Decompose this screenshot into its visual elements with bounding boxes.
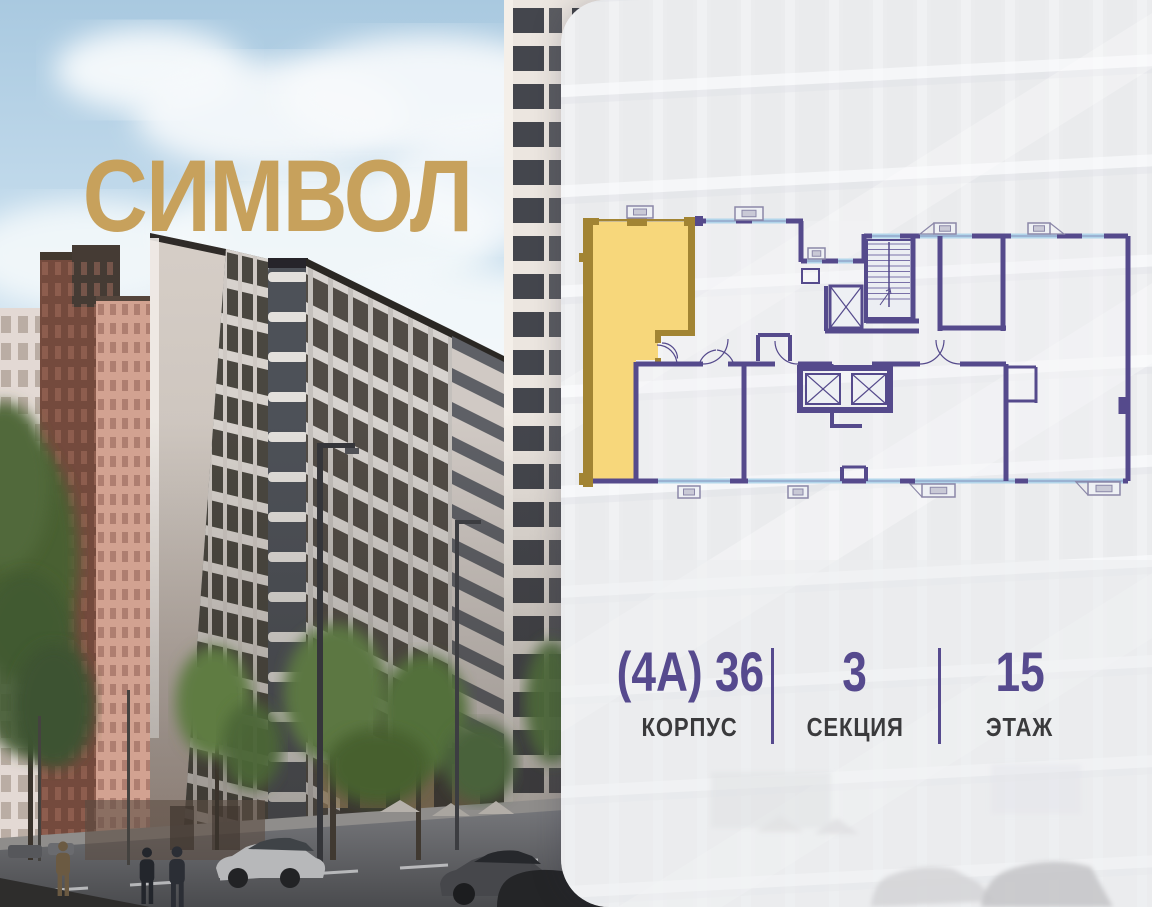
svg-text:СИМВОЛ: СИМВОЛ — [83, 140, 472, 253]
